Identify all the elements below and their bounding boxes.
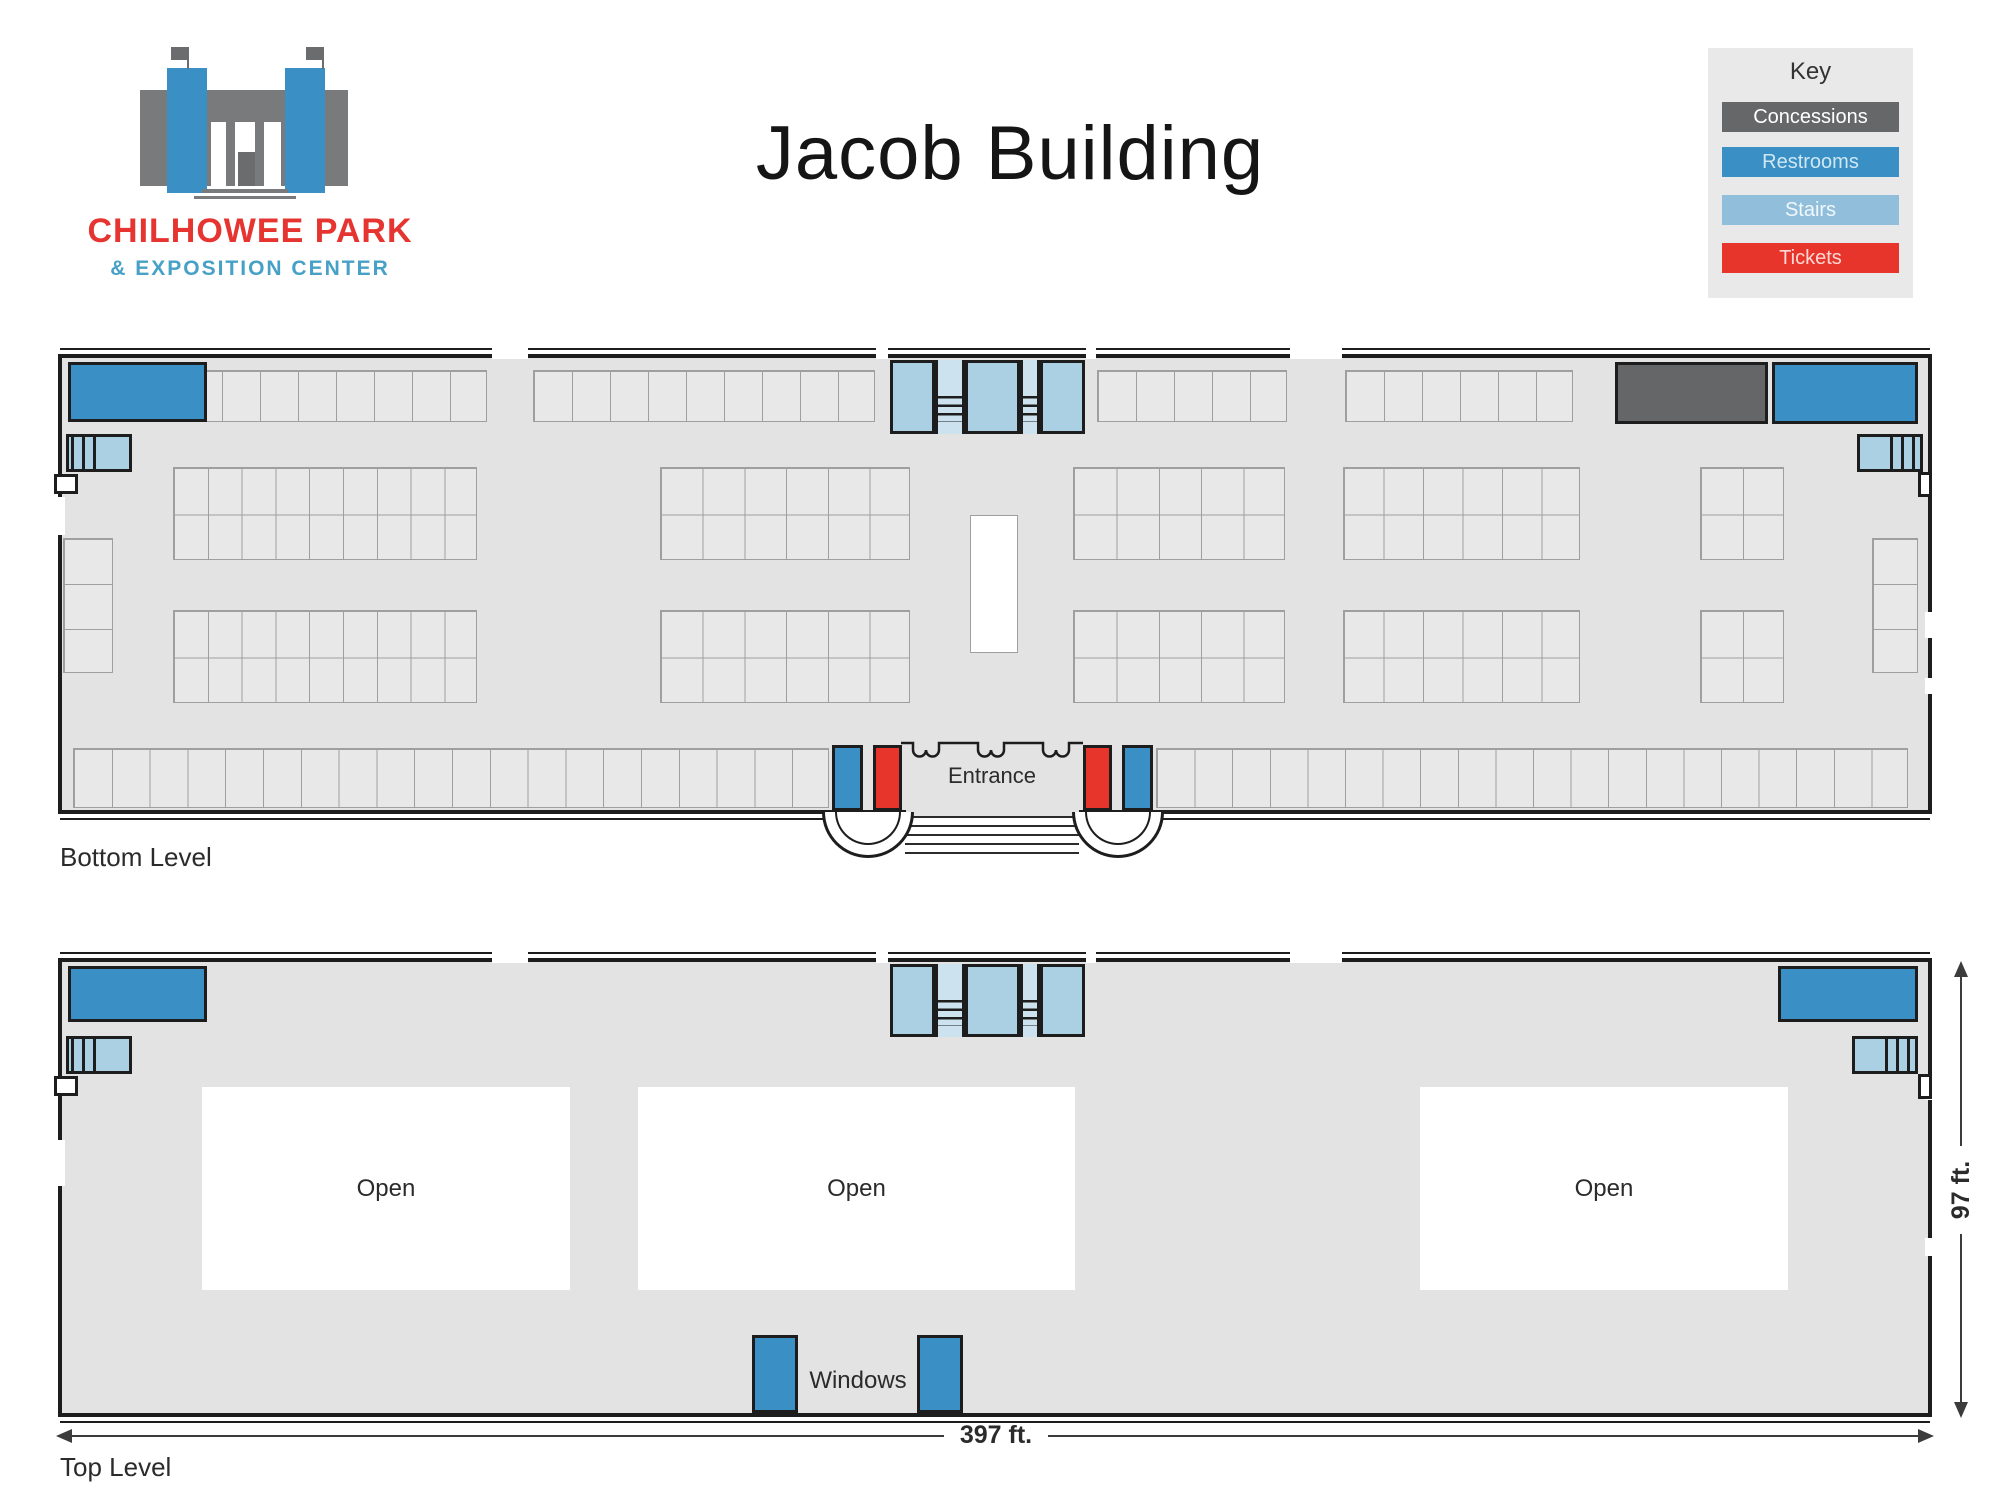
door-gap <box>876 951 888 963</box>
booth-block <box>63 538 113 673</box>
stair-treads <box>938 1000 962 1026</box>
entrance-planter-right <box>1072 812 1164 858</box>
planter-inner-ring <box>1085 812 1151 845</box>
booth-block <box>1343 467 1580 560</box>
restroom-area <box>1778 966 1918 1022</box>
booth-block <box>1700 467 1784 560</box>
arrowhead-left-icon <box>56 1429 72 1443</box>
top-level-label: Top Level <box>60 1452 171 1483</box>
restroom-area <box>1772 362 1918 424</box>
door-gap <box>1925 678 1934 694</box>
open-area-label: Open <box>1575 1175 1634 1203</box>
stair-landing <box>1040 360 1085 434</box>
stair-landing <box>965 360 1020 434</box>
ticket-area <box>1083 745 1112 811</box>
door-gap <box>1290 347 1342 359</box>
booth-block <box>173 467 477 560</box>
door-gap <box>56 497 65 535</box>
wall-notch <box>54 474 78 494</box>
bottom-level-label: Bottom Level <box>60 842 212 873</box>
stairwell <box>935 360 965 434</box>
door-gap <box>1086 347 1096 359</box>
stair-treads <box>1885 1039 1913 1071</box>
corner-stairs <box>1857 434 1923 472</box>
arrowhead-right-icon <box>1918 1429 1934 1443</box>
door-gap <box>1925 1238 1934 1256</box>
dim-line-horizontal <box>1048 1435 1932 1437</box>
stair-treads <box>71 1039 99 1071</box>
door-gap <box>492 347 528 359</box>
corner-stairs <box>66 1036 132 1074</box>
wall-notch <box>1918 472 1932 497</box>
stair-treads <box>1023 396 1037 422</box>
booth-block <box>1073 467 1285 560</box>
booth-block <box>1700 610 1784 703</box>
height-dimension-label: 97 ft. <box>1947 1110 1975 1270</box>
booth-block <box>533 370 875 422</box>
width-dimension-label: 397 ft. <box>916 1421 1076 1449</box>
booth-block <box>660 467 910 560</box>
wall-notch <box>1918 1074 1932 1099</box>
dim-line-horizontal <box>58 1435 944 1437</box>
open-area: Open <box>202 1087 570 1290</box>
door-gap <box>876 347 888 359</box>
stair-landing <box>890 964 935 1037</box>
booth-block <box>1073 610 1285 703</box>
windows-label: Windows <box>778 1366 938 1396</box>
stair-treads <box>1023 1000 1037 1026</box>
jacob-building-floor-plan-page: CHILHOWEE PARK & EXPOSITION CENTER Jacob… <box>0 0 2000 1502</box>
bottom-level-exterior-line-top <box>60 348 1930 350</box>
stair-treads <box>938 396 962 422</box>
open-area: Open <box>638 1087 1075 1290</box>
booth-block <box>1097 370 1287 422</box>
door-gap <box>492 951 528 963</box>
planter-inner-ring <box>835 812 901 845</box>
restroom-area <box>68 362 207 422</box>
booth-block <box>1343 610 1580 703</box>
open-area-label: Open <box>827 1175 886 1203</box>
stair-treads <box>71 437 99 469</box>
stairwell <box>1020 360 1040 434</box>
entrance-label: Entrance <box>912 762 1072 790</box>
floor-plan-canvas: EntranceBottom LevelOpenOpenOpenWindowsT… <box>0 0 2000 1502</box>
booth-block <box>1156 748 1908 808</box>
ticket-area <box>873 745 902 811</box>
arrowhead-up-icon <box>1954 961 1968 977</box>
stairwell <box>935 964 965 1037</box>
restroom-area <box>832 745 863 811</box>
stair-landing <box>965 964 1020 1037</box>
stage-area <box>970 515 1018 653</box>
booth-block <box>1872 538 1918 673</box>
booth-block <box>173 610 477 703</box>
restroom-area <box>68 966 207 1022</box>
top-level-exterior-line-top <box>60 952 1930 954</box>
arrowhead-down-icon <box>1954 1402 1968 1418</box>
open-area-label: Open <box>357 1175 416 1203</box>
corner-stairs <box>1852 1036 1918 1074</box>
stair-treads <box>1890 437 1918 469</box>
booth-block <box>73 748 829 808</box>
entrance-planter-left <box>822 812 914 858</box>
wall-notch <box>54 1076 78 1096</box>
open-area: Open <box>1420 1087 1788 1290</box>
concession-area <box>1615 362 1768 424</box>
stair-landing <box>1040 964 1085 1037</box>
stair-landing <box>890 360 935 434</box>
restroom-area <box>1122 745 1153 811</box>
stairwell <box>1020 964 1040 1037</box>
door-gap <box>1290 951 1342 963</box>
door-gap <box>1925 612 1934 638</box>
corner-stairs <box>66 434 132 472</box>
entrance-door-symbols <box>899 733 1085 761</box>
door-gap <box>56 1140 65 1186</box>
booth-block <box>1345 370 1573 422</box>
entrance-wall-gap <box>906 809 1079 816</box>
entrance-steps <box>905 816 1079 860</box>
door-gap <box>1086 951 1096 963</box>
booth-block <box>660 610 910 703</box>
booth-block <box>183 370 487 422</box>
